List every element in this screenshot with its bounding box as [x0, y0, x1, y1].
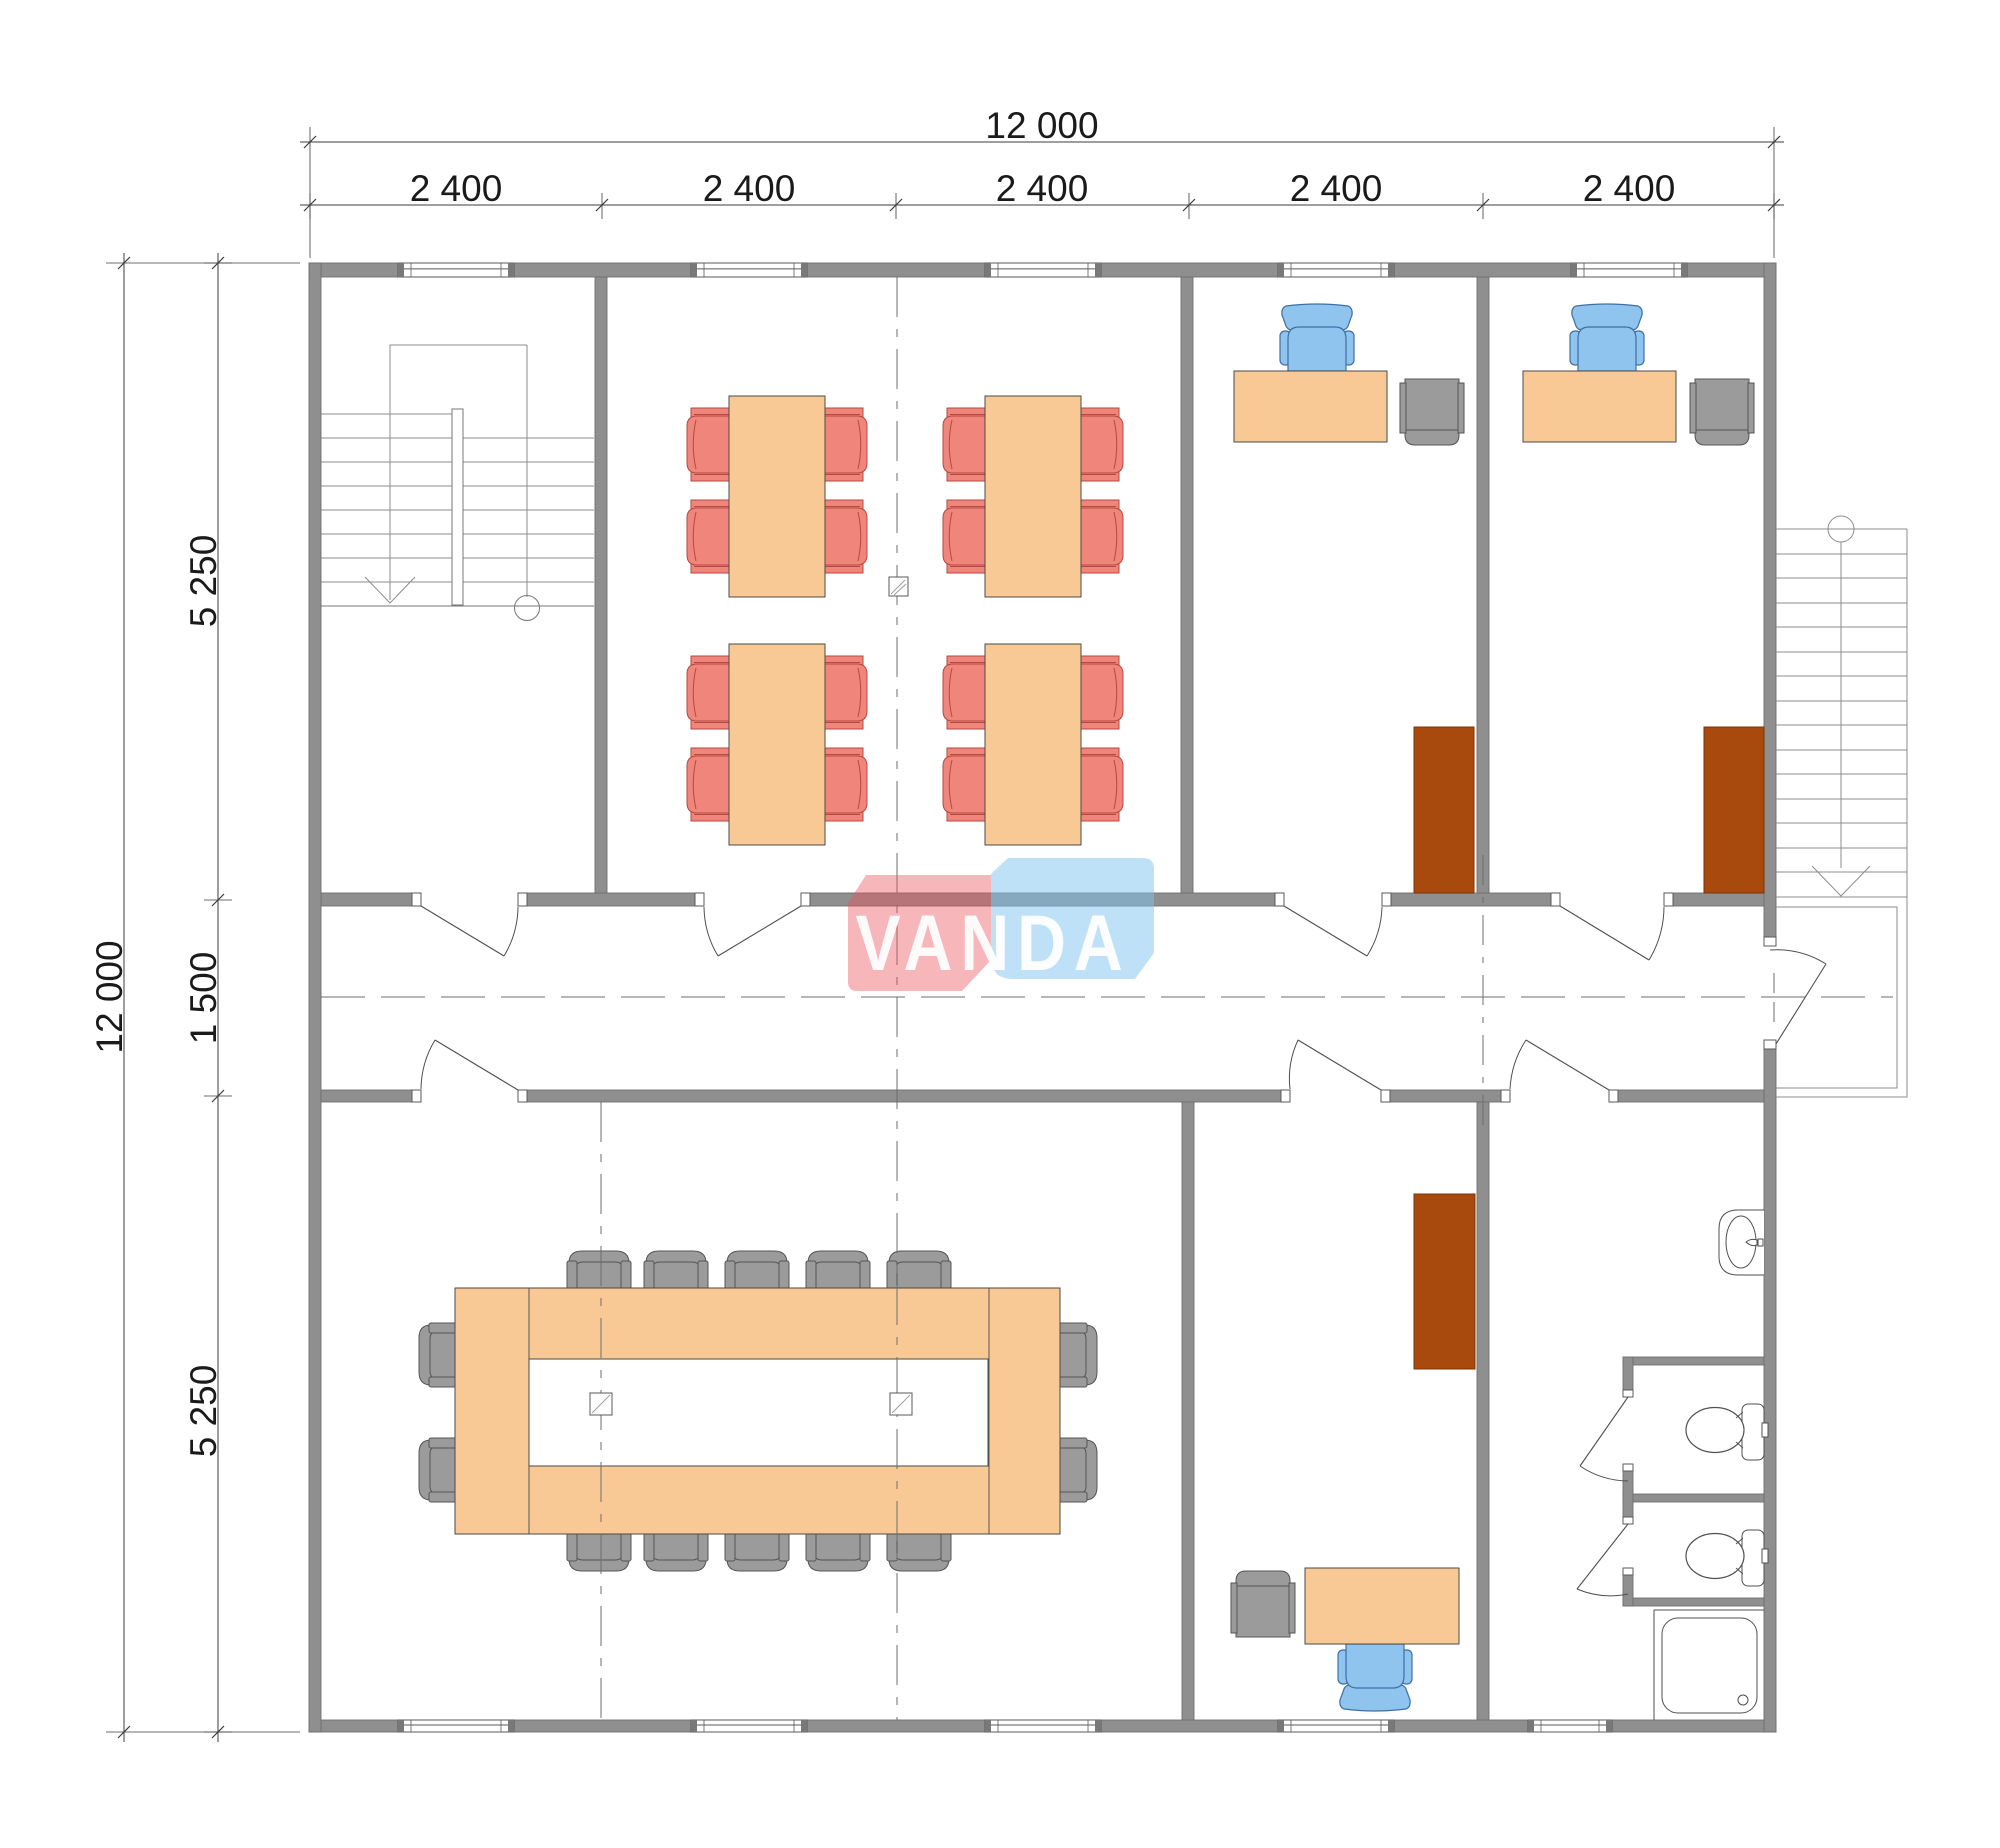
svg-text:12 000: 12 000	[89, 940, 130, 1053]
svg-text:12 000: 12 000	[985, 105, 1098, 146]
svg-text:VANDA: VANDA	[855, 898, 1130, 987]
svg-text:1 500: 1 500	[183, 952, 224, 1045]
svg-text:2 400: 2 400	[1290, 168, 1383, 209]
svg-text:5 250: 5 250	[183, 1365, 224, 1458]
svg-text:2 400: 2 400	[410, 168, 503, 209]
svg-text:2 400: 2 400	[996, 168, 1089, 209]
svg-text:5 250: 5 250	[183, 535, 224, 628]
svg-text:2 400: 2 400	[1583, 168, 1676, 209]
svg-text:2 400: 2 400	[703, 168, 796, 209]
